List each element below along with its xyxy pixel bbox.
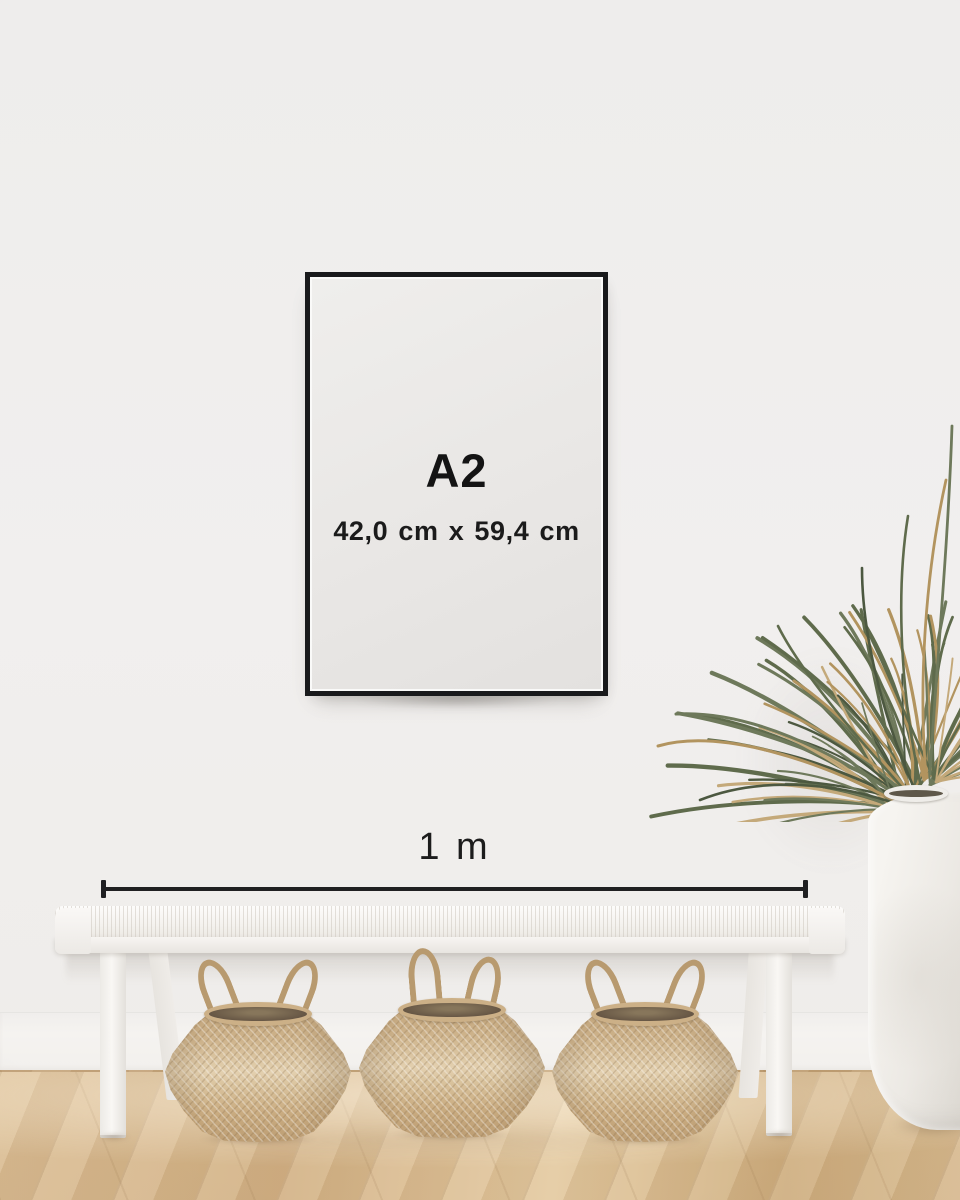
white-ceramic-floor-vase	[868, 792, 960, 1130]
scale-bar-line	[103, 887, 806, 891]
bench-leg-front-left	[100, 950, 126, 1138]
basket-body	[552, 1012, 738, 1142]
bench-seat-left-cap	[55, 908, 91, 954]
seagrass-belly-basket-middle	[359, 996, 545, 1138]
seagrass-belly-basket-left	[165, 1000, 351, 1142]
seagrass-belly-basket-right	[552, 1000, 738, 1142]
palm-plant	[600, 330, 960, 822]
bench-leg-shadow-left	[92, 1132, 136, 1142]
poster-insert: A2 42,0 cm x 59,4 cm	[310, 277, 603, 691]
basket-rim	[204, 1002, 312, 1026]
under-bench-shadow	[66, 952, 834, 988]
scale-bar-label: 1 m	[103, 826, 806, 869]
bench-seat-right-cap	[809, 908, 845, 954]
bench-leg-shadow-right	[758, 1130, 802, 1140]
basket-body	[165, 1012, 351, 1142]
black-picture-frame: A2 42,0 cm x 59,4 cm	[305, 272, 608, 696]
basket-rim	[398, 998, 506, 1022]
bench-leg-front-right	[766, 950, 792, 1136]
paper-size-label: A2	[425, 447, 487, 494]
size-guide-mockup: A2 42,0 cm x 59,4 cm 1 m	[0, 0, 960, 1200]
white-woven-bench-seat	[55, 906, 845, 956]
basket-body	[359, 1008, 545, 1138]
bench-seat-woven-top	[55, 906, 845, 938]
basket-rim	[591, 1002, 699, 1026]
paper-dimensions-label: 42,0 cm x 59,4 cm	[333, 516, 579, 547]
scale-bar-left-cap	[101, 880, 106, 898]
vase-mouth	[884, 785, 948, 802]
bench-seat-front-rail	[55, 937, 845, 953]
